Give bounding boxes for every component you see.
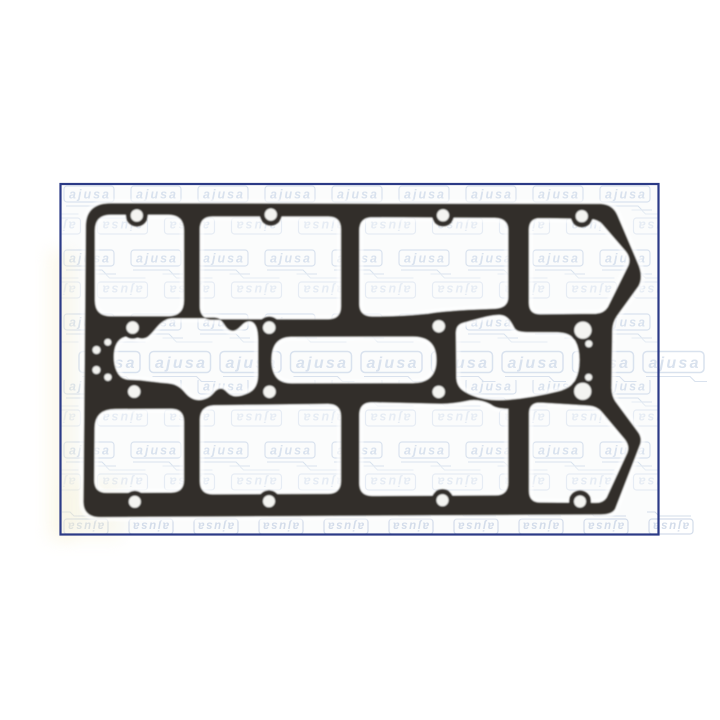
svg-text:ajusa: ajusa bbox=[649, 355, 699, 372]
svg-text:ajusa: ajusa bbox=[367, 355, 417, 372]
svg-text:ajusa: ajusa bbox=[262, 520, 299, 532]
svg-text:ajusa: ajusa bbox=[132, 520, 169, 532]
svg-text:ajusa: ajusa bbox=[508, 355, 558, 372]
svg-text:ajusa: ajusa bbox=[587, 520, 624, 532]
svg-text:ajusa: ajusa bbox=[197, 520, 234, 532]
svg-text:ajusa: ajusa bbox=[522, 520, 559, 532]
svg-text:ajusa: ajusa bbox=[296, 355, 346, 372]
svg-text:ajusa: ajusa bbox=[155, 355, 205, 372]
svg-text:ajusa: ajusa bbox=[457, 520, 494, 532]
svg-text:ajusa: ajusa bbox=[327, 520, 364, 532]
svg-text:ajusa: ajusa bbox=[392, 520, 429, 532]
